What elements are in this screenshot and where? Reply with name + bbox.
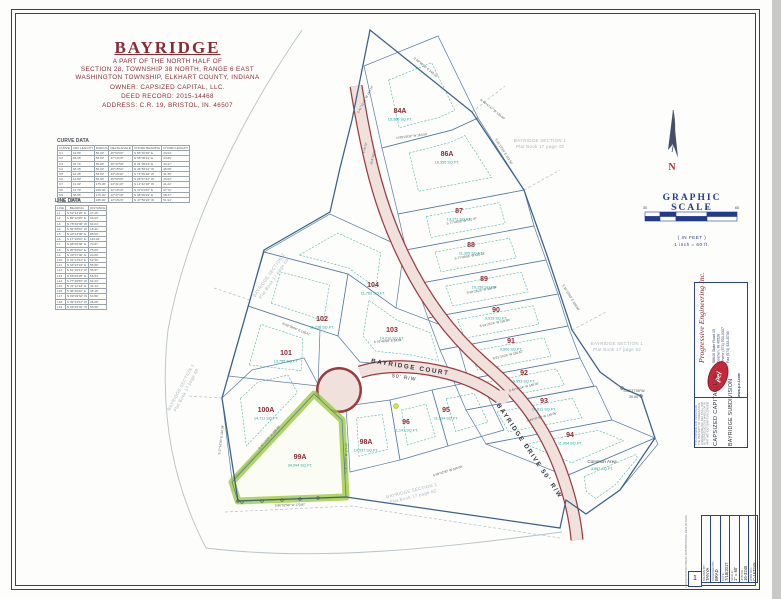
lot-number-86A: 86A (441, 151, 454, 158)
certification-note: THIS DRAWING AND DESIGN ARE THE PROPERTY… (696, 400, 709, 445)
lot-number-96: 96 (402, 419, 410, 426)
project-box: THIS DRAWING AND DESIGN ARE THE PROPERTY… (694, 397, 748, 448)
lot-number-99A: 99A (294, 454, 307, 461)
lot-98A (346, 400, 400, 472)
lot-number-103: 103 (386, 327, 398, 334)
bearing-label: N 89°29'32" W 163.50' (396, 132, 428, 140)
client-name: CAPSIZED CAPITAL, LLC (713, 399, 719, 446)
sheet-number: 1 (688, 571, 702, 587)
common-area-sqft: 4,557 SQ.FT. (591, 467, 613, 471)
setback-line (363, 300, 438, 360)
lot-sqft-102: 11,738 SQ.FT. (310, 326, 334, 330)
jog-distance-label: 20.00' (629, 395, 639, 399)
setback-line (299, 233, 380, 288)
surrounding-boundary-bottom (206, 532, 562, 554)
lot-number-98A: 98A (360, 439, 373, 446)
bearing-label: N 48°47'47" W 120.00' (479, 98, 506, 121)
graphic-scale-title: GRAPHIC SCALE (640, 193, 744, 213)
adjacent-lot-line (188, 396, 222, 398)
lot-number-94: 94 (566, 432, 574, 439)
lot-number-95: 95 (442, 407, 450, 414)
lot-84A (364, 36, 478, 148)
bayridge-court-rw-label: 50' R/W (392, 373, 417, 383)
bearing-label: S 86°02'00" W 170.87' (274, 502, 305, 507)
adjacent-plat-labels: BAYRIDGE SECTION 1Plat Book 17 page 43BA… (166, 138, 643, 505)
adjacent-lot-line (214, 288, 250, 300)
drawing-file-path: L:\PEI16\SURVEYING\16-3245\BAYRIDGE REPL… (684, 468, 688, 588)
lot-sqft-93: 10,811 SQ.FT. (532, 408, 556, 412)
adjacent-lot-line (225, 506, 560, 538)
setback-line (271, 272, 329, 321)
lot-sqft-84A: 15,366 SQ.FT. (388, 118, 413, 122)
lot-number-104: 104 (367, 282, 379, 289)
north-arrow: N (668, 110, 678, 173)
project-name: BAYRIDGE SUBDIVISION (728, 399, 734, 446)
lot-sqft-98A: 14,937 SQ.FT. (354, 449, 379, 453)
firm-name: Progressive Engineering Inc. (697, 291, 706, 363)
lot-96 (390, 390, 448, 460)
bearing-label: S 17°16'00" E 116.04' (217, 424, 225, 454)
lot-sqft-95: 11,534 SQ.FT. (434, 417, 458, 421)
adjacent-plat-name: BAYRIDGE SECTION 1 (591, 341, 643, 346)
setback-line (249, 324, 302, 370)
lot-number-92: 92 (520, 370, 528, 377)
common-area (566, 438, 658, 514)
lot-number-101: 101 (280, 350, 292, 357)
plat-map: BAYRIDGE COURT 50' R/W BAYRIDGE DRIVE 50… (0, 0, 781, 599)
lot-sqft-100A: 14,711 SQ.FT. (254, 417, 278, 421)
north-label: N (668, 162, 676, 173)
scale-ratio-note: 1 inch = 60 ft. (640, 242, 744, 249)
firm-address: 58640 State Road 15Goshen, IN 46528Phone… (712, 285, 730, 363)
junction-patch (495, 390, 509, 404)
lot-101 (228, 306, 320, 386)
bearing-label: S 59°42'00" W 340.00' (432, 465, 463, 478)
lot-sqft-104: 11,762 SQ.FT. (361, 292, 385, 296)
plat-sheet: BAYRIDGE A PART OF THE NORTH HALF OFSECT… (0, 0, 781, 599)
lot-86A (382, 118, 524, 214)
lot-sqft-96: 11,141 SQ.FT. (394, 429, 418, 433)
adjacent-lot-line (572, 312, 606, 330)
adjacent-plat-book: Plat Book 17 page 43 (516, 144, 564, 149)
adjacent-plat-name: BAYRIDGE SECTION 1 (514, 138, 566, 143)
jog-bearing-label: S49°37'00"W (623, 389, 645, 393)
lot-sqft-101: 13,755 SQ.FT. (274, 360, 299, 364)
bearing-label: S 78°46'00" E 64.04' (374, 338, 403, 344)
adjacent-lot-line (524, 170, 560, 190)
lot-number-87: 87 (455, 208, 463, 215)
lot-number-91: 91 (507, 338, 515, 345)
lot-number-88: 88 (467, 242, 475, 249)
lot-number-100A: 100A (258, 407, 275, 414)
lot-number-89: 89 (480, 276, 488, 283)
bearing-label: S 31°13'34" E 152.50' (494, 138, 514, 166)
graphic-scale-block: GRAPHIC SCALE ( IN FEET ) 1 inch = 60 ft… (640, 193, 744, 248)
bearing-label: N 59°38'00" E 118.41' (282, 322, 312, 337)
lot-sqft-94: 11,954 SQ.FT. (558, 442, 582, 446)
lot-number-93: 93 (540, 398, 548, 405)
firm-website: www.p-e-i.com (737, 365, 741, 397)
lot-number-102: 102 (316, 316, 328, 323)
survey-point-marker (394, 404, 399, 409)
lot-sqft-86A: 16,355 SQ.FT. (435, 161, 460, 165)
lot-99A-highlight (232, 394, 346, 501)
lot-number-90: 90 (492, 307, 500, 314)
adjacent-plat-book: Plat Book 17 page 62 (593, 347, 641, 352)
engineer-firm-box: Progressive Engineering Inc. 58640 State… (694, 282, 748, 399)
title-block-table: DRAWN BY:TANYACHECKED BY:BRADDATE:7/18/2… (701, 515, 747, 583)
lot-number-84A: 84A (394, 108, 407, 115)
lot-sqft-99A: 34,094 SQ.FT. (288, 464, 313, 468)
common-area-label: Common Area (587, 459, 617, 464)
